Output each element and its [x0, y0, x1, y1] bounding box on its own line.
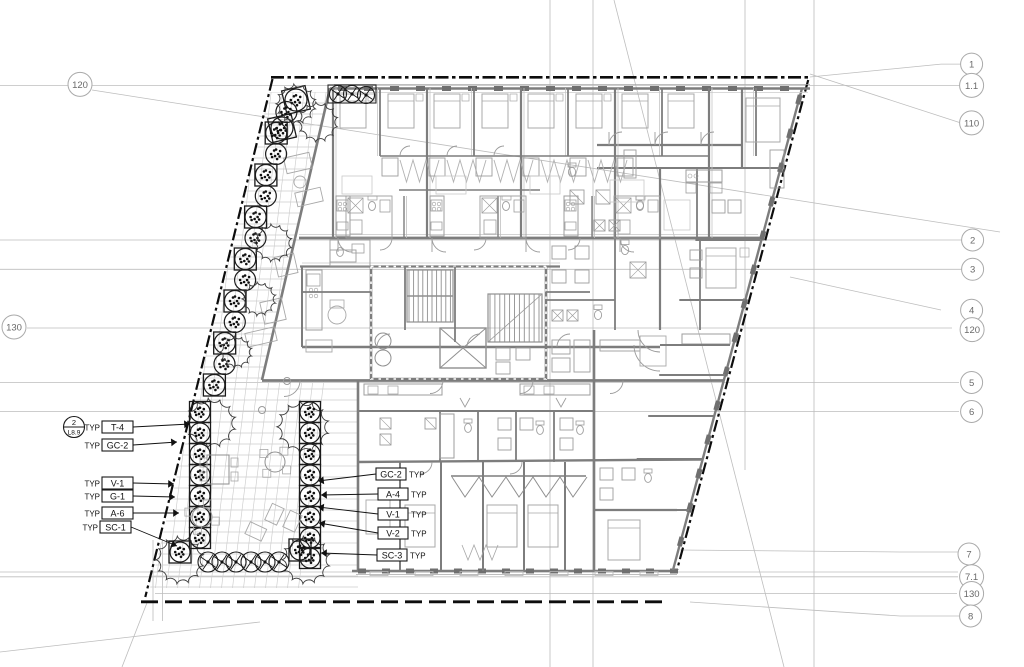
svg-text:110: 110	[964, 118, 979, 129]
svg-text:3: 3	[970, 265, 975, 276]
svg-text:A-4: A-4	[386, 490, 400, 500]
svg-text:2: 2	[72, 418, 76, 427]
svg-text:TYP: TYP	[84, 510, 100, 519]
svg-text:TYP: TYP	[84, 493, 100, 502]
svg-text:TYP: TYP	[82, 524, 98, 533]
svg-text:V-1: V-1	[386, 510, 400, 520]
svg-text:130: 130	[964, 589, 980, 600]
svg-text:TYP: TYP	[84, 442, 100, 451]
svg-text:4: 4	[969, 306, 974, 317]
svg-text:8: 8	[968, 611, 973, 622]
svg-text:120: 120	[964, 325, 980, 336]
svg-text:GC-2: GC-2	[107, 441, 129, 451]
svg-text:G-1: G-1	[110, 492, 125, 502]
svg-text:SC-3: SC-3	[382, 551, 403, 561]
svg-text:V-2: V-2	[386, 529, 400, 539]
svg-text:120: 120	[72, 80, 88, 91]
svg-text:130: 130	[6, 322, 22, 333]
svg-text:6: 6	[969, 407, 974, 418]
svg-text:TYP: TYP	[410, 552, 426, 561]
svg-text:A-6: A-6	[110, 509, 124, 519]
svg-text:TYP: TYP	[411, 511, 427, 520]
svg-text:1.1: 1.1	[965, 81, 978, 92]
svg-text:2: 2	[970, 235, 975, 246]
svg-text:TYP: TYP	[409, 471, 425, 480]
svg-text:L8.9: L8.9	[68, 430, 81, 437]
svg-text:TYP: TYP	[411, 491, 427, 500]
svg-text:1: 1	[969, 60, 974, 71]
svg-text:GC-2: GC-2	[380, 470, 402, 480]
svg-text:TYP: TYP	[84, 424, 100, 433]
svg-text:TYP: TYP	[411, 530, 427, 539]
svg-text:SC-1: SC-1	[105, 523, 126, 533]
svg-text:7: 7	[966, 549, 971, 560]
svg-text:T-4: T-4	[111, 423, 124, 433]
svg-text:5: 5	[969, 378, 974, 389]
svg-text:TYP: TYP	[84, 480, 100, 489]
svg-text:V-1: V-1	[111, 479, 125, 489]
